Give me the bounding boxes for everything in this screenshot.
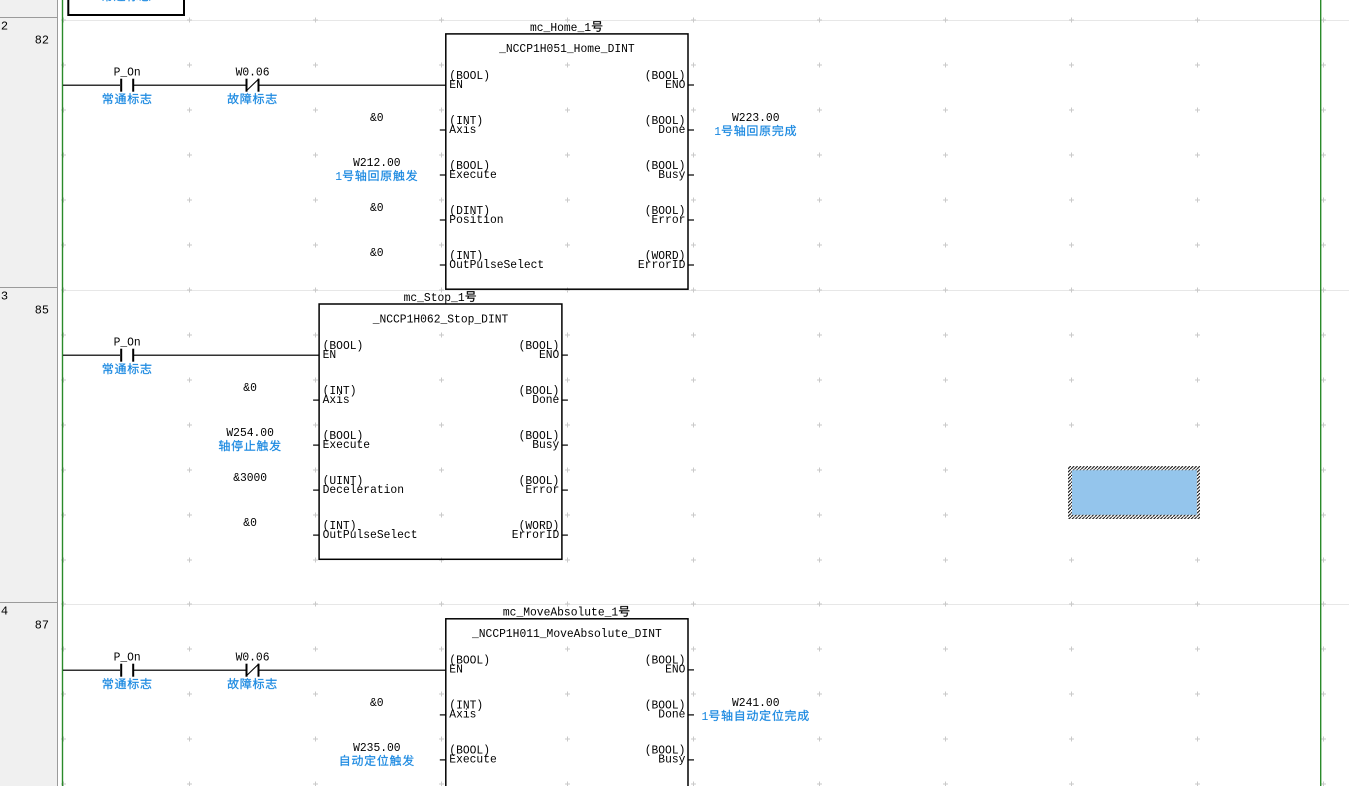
svg-text:OutPulseSelect: OutPulseSelect — [323, 528, 418, 542]
svg-text:Error: Error — [652, 213, 686, 227]
svg-text:ErrorID: ErrorID — [512, 528, 560, 542]
svg-text:mc_MoveAbsolute_1: mc_MoveAbsolute_1 — [503, 606, 618, 620]
svg-text:W0.06: W0.06 — [236, 651, 270, 665]
svg-text:Axis: Axis — [449, 123, 476, 137]
svg-text:Execute: Execute — [449, 168, 497, 182]
svg-text:W241.00: W241.00 — [732, 696, 780, 710]
svg-text:W0.06: W0.06 — [236, 66, 270, 80]
svg-text:85: 85 — [35, 304, 49, 318]
svg-text:_NCCP1H062_Stop_DINT: _NCCP1H062_Stop_DINT — [372, 312, 509, 326]
svg-text:W235.00: W235.00 — [353, 741, 401, 755]
svg-text:_NCCP1H011_MoveAbsolute_DINT: _NCCP1H011_MoveAbsolute_DINT — [471, 627, 662, 641]
svg-text:1: 1 — [702, 710, 709, 724]
svg-text:P_On: P_On — [114, 651, 141, 665]
svg-text:82: 82 — [35, 34, 49, 48]
svg-text:W212.00: W212.00 — [353, 156, 401, 170]
svg-text:W223.00: W223.00 — [732, 111, 780, 125]
svg-text:Done: Done — [532, 393, 559, 407]
svg-text:P_On: P_On — [114, 66, 141, 80]
svg-text:Axis: Axis — [323, 393, 350, 407]
svg-text:ENO: ENO — [665, 663, 685, 677]
svg-text:Busy: Busy — [532, 438, 559, 452]
svg-text:2: 2 — [1, 20, 8, 34]
svg-text:&0: &0 — [370, 111, 384, 125]
svg-text:mc_Home_1: mc_Home_1 — [530, 21, 591, 35]
svg-text:&0: &0 — [370, 246, 384, 260]
svg-text:87: 87 — [35, 619, 49, 633]
svg-text:EN: EN — [323, 348, 337, 362]
svg-text:ENO: ENO — [539, 348, 559, 362]
svg-text:&3000: &3000 — [233, 471, 267, 485]
svg-text:ENO: ENO — [665, 78, 685, 92]
svg-text:Position: Position — [449, 213, 503, 227]
svg-text:OutPulseSelect: OutPulseSelect — [449, 258, 544, 272]
svg-text:&0: &0 — [370, 201, 384, 215]
svg-text:&0: &0 — [370, 696, 384, 710]
svg-text:Execute: Execute — [449, 753, 497, 767]
svg-text:Done: Done — [658, 708, 685, 722]
svg-text:Error: Error — [525, 483, 559, 497]
svg-text:ErrorID: ErrorID — [638, 258, 686, 272]
svg-text:P_On: P_On — [114, 336, 141, 350]
svg-text:EN: EN — [449, 78, 463, 92]
svg-text:_NCCP1H051_Home_DINT: _NCCP1H051_Home_DINT — [498, 42, 635, 56]
svg-text:Axis: Axis — [449, 708, 476, 722]
svg-text:3: 3 — [1, 290, 8, 304]
svg-text:EN: EN — [449, 663, 463, 677]
svg-text:mc_Stop_1: mc_Stop_1 — [404, 291, 465, 305]
svg-text:4: 4 — [1, 605, 8, 619]
svg-text:W254.00: W254.00 — [226, 426, 274, 440]
svg-text:1: 1 — [714, 125, 721, 139]
svg-text:1: 1 — [335, 170, 342, 184]
svg-text:Done: Done — [658, 123, 685, 137]
svg-text:Busy: Busy — [658, 753, 685, 767]
svg-text:Deceleration: Deceleration — [323, 483, 404, 497]
svg-text:&0: &0 — [243, 381, 257, 395]
svg-text:&0: &0 — [243, 516, 257, 530]
svg-text:Execute: Execute — [323, 438, 371, 452]
svg-text:Busy: Busy — [658, 168, 685, 182]
